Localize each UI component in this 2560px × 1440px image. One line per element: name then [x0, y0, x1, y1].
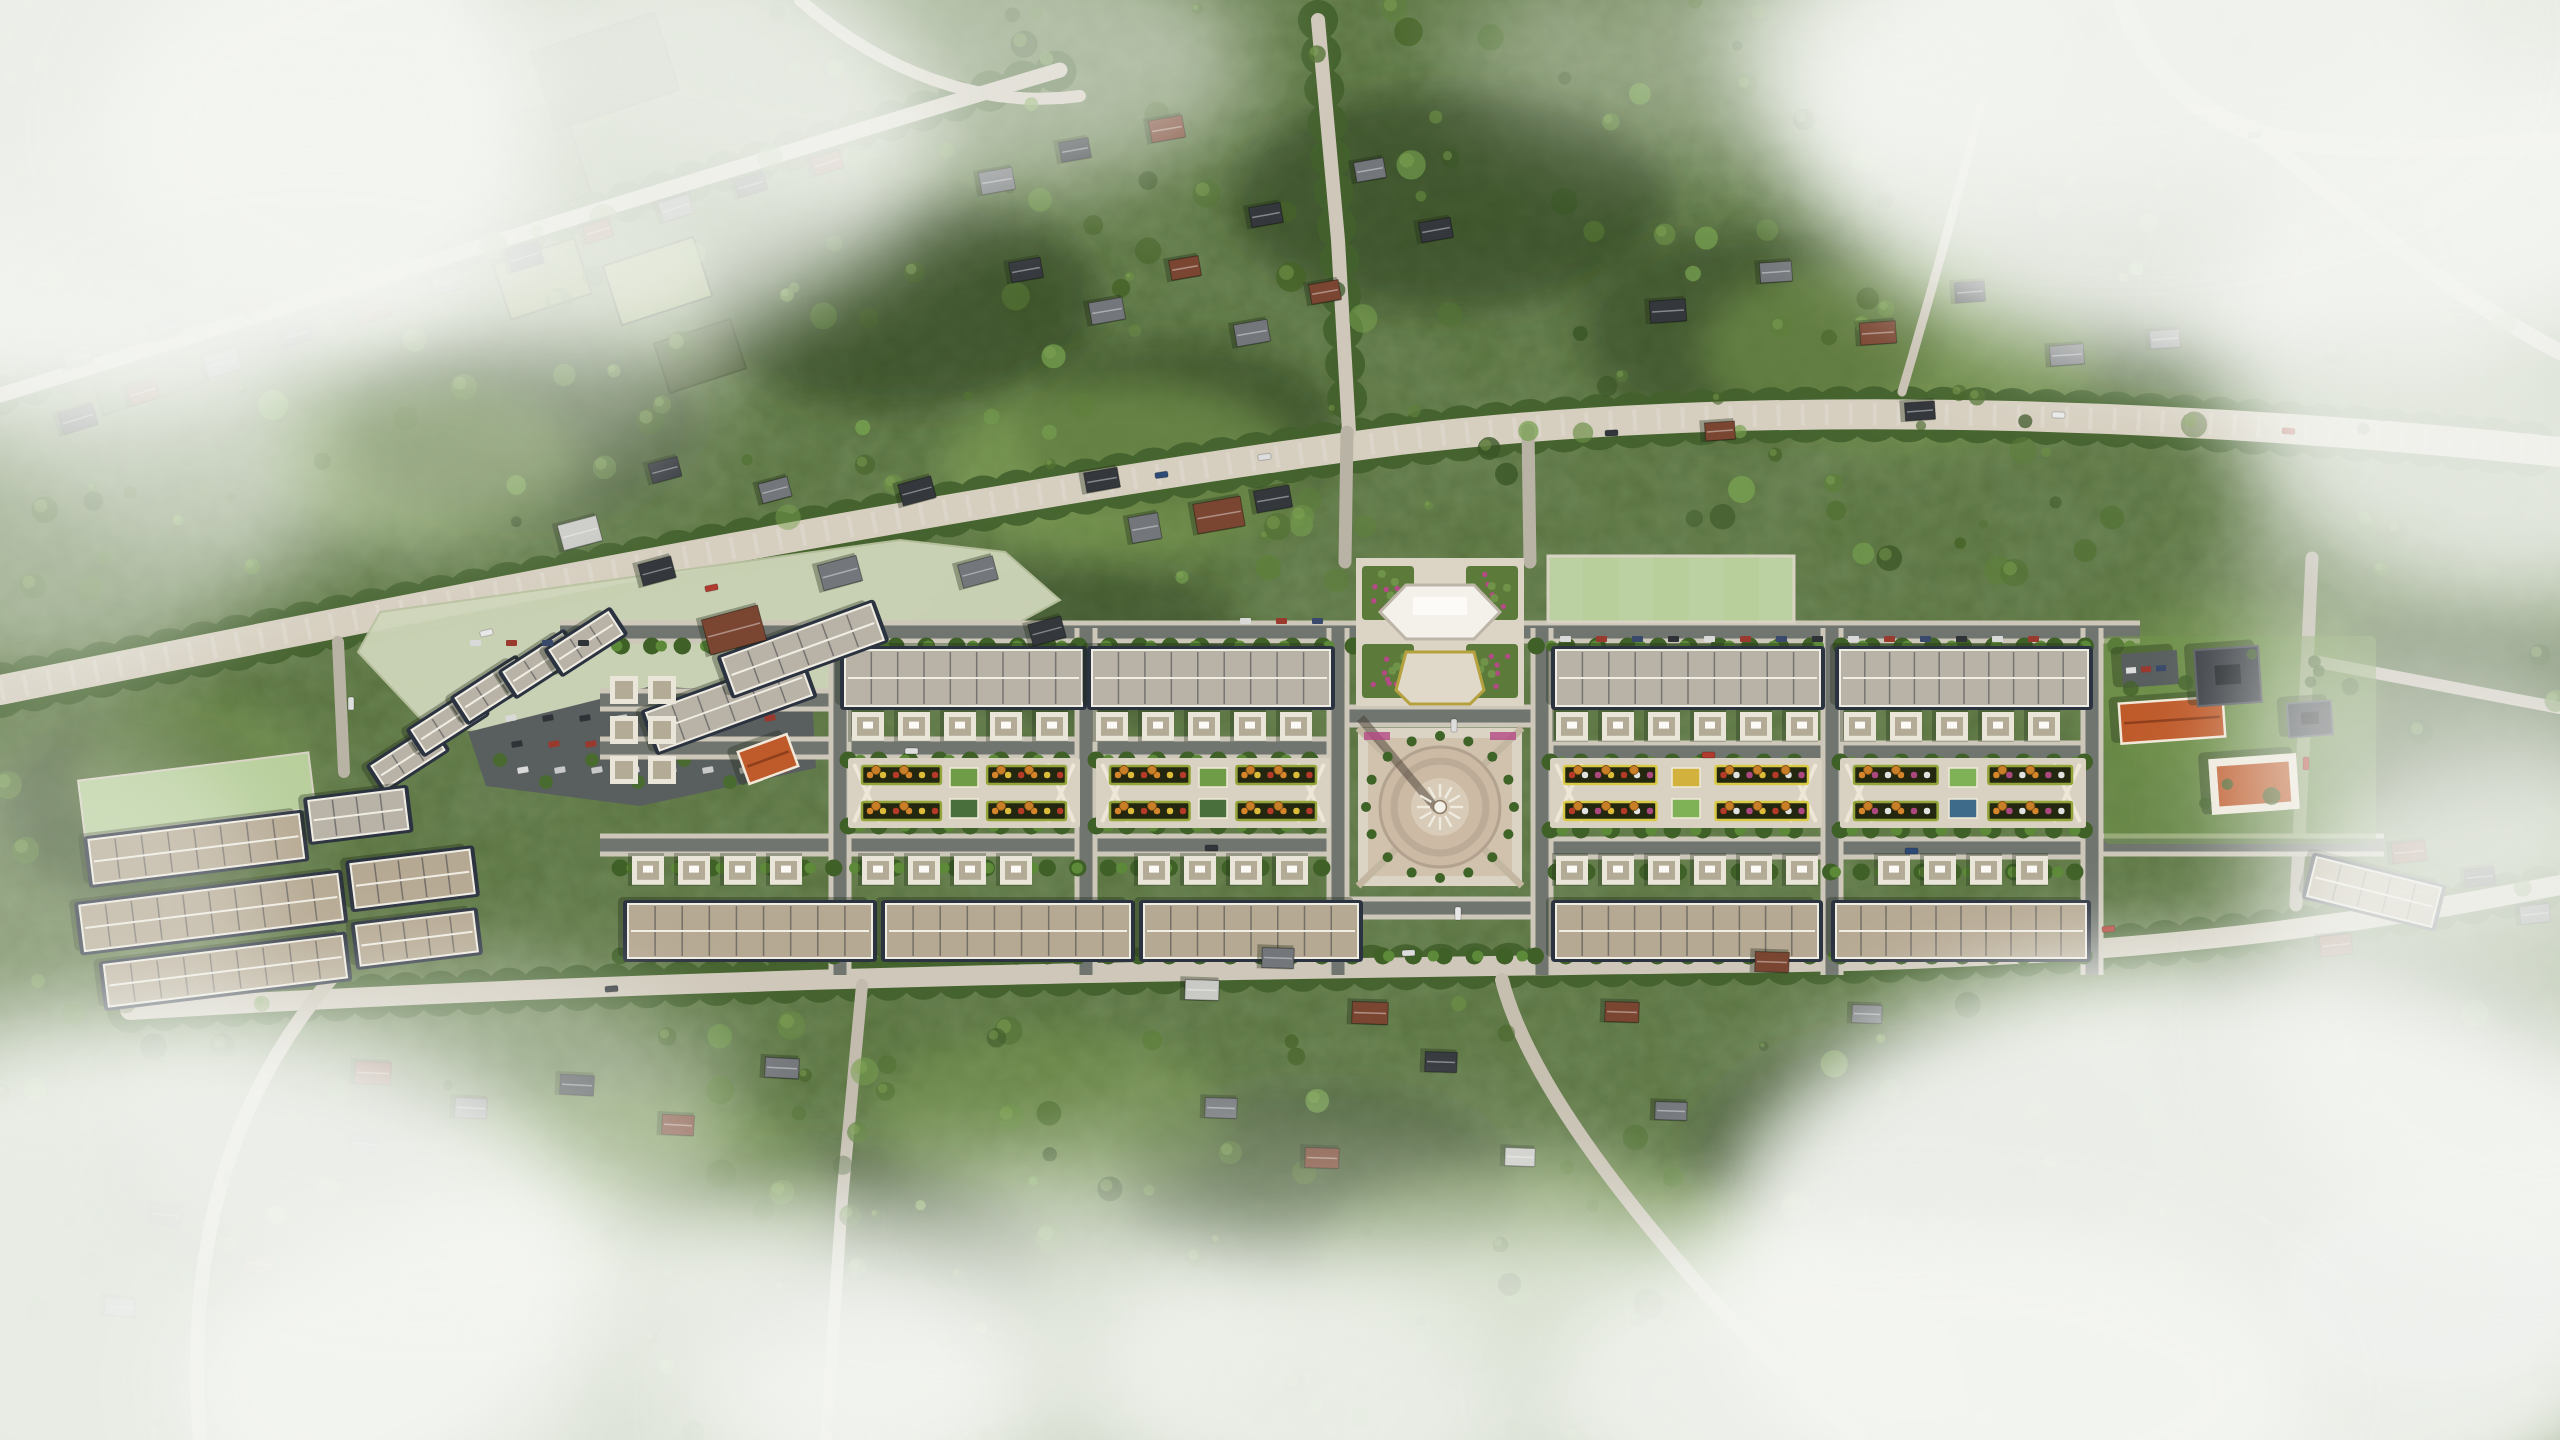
orange-tree	[1753, 802, 1762, 811]
parked-car	[2141, 666, 2151, 673]
flowers	[893, 808, 899, 814]
plaza-palm	[1487, 752, 1497, 762]
villa-house	[1552, 709, 1588, 742]
villa-house	[1276, 709, 1312, 742]
magenta-flowers	[1505, 654, 1510, 659]
house-ridge	[1607, 1011, 1637, 1012]
villa-house	[1644, 709, 1680, 742]
tree	[1287, 1047, 1305, 1065]
flowers	[1595, 808, 1601, 814]
flowers	[1772, 772, 1778, 778]
playground-court	[1672, 799, 1700, 818]
tree-highlight	[1266, 516, 1280, 530]
tree-highlight	[1770, 449, 1777, 456]
tree	[1354, 516, 1376, 538]
tree	[2018, 414, 2032, 428]
tree	[775, 505, 800, 530]
car	[2052, 412, 2065, 418]
garden-tree	[1378, 570, 1386, 578]
flowers	[1018, 808, 1024, 814]
house-ridge	[1187, 989, 1217, 990]
tree	[1138, 171, 1157, 190]
flowers	[1057, 772, 1063, 778]
garden-boulevard-segment	[1840, 758, 2086, 828]
villa-house	[1226, 853, 1262, 886]
townhouse-block	[618, 897, 877, 962]
civic-plaza	[1356, 558, 1524, 706]
villa-house	[720, 853, 756, 886]
villa-skylight	[1199, 722, 1209, 729]
flowers	[1798, 808, 1804, 814]
tree	[1112, 279, 1130, 297]
tree-highlight	[878, 1084, 888, 1094]
tree	[1042, 425, 1057, 440]
tree	[1349, 304, 1378, 333]
plaza-palm	[1463, 736, 1473, 746]
villa-skylight	[1011, 866, 1021, 873]
tree	[1954, 537, 1966, 549]
flowers	[2045, 808, 2051, 814]
villa-house	[1782, 853, 1818, 886]
flowers	[1872, 808, 1878, 814]
villa-house	[648, 676, 676, 704]
village-house	[759, 1054, 799, 1080]
village-house	[1123, 510, 1163, 546]
flowers	[1005, 772, 1011, 778]
magenta-flowers	[1501, 604, 1506, 609]
tree	[1756, 219, 1778, 241]
flowers	[2058, 772, 2064, 778]
mowing-stripe	[1759, 556, 1794, 622]
tree	[1916, 421, 1926, 431]
parked-car	[2156, 665, 2166, 672]
flowers	[1772, 808, 1778, 814]
mowing-stripe	[1548, 556, 1583, 622]
fog-patch	[950, 1105, 1670, 1325]
villa-skylight	[1567, 722, 1577, 729]
villa-skylight	[909, 722, 919, 729]
parked-car	[2126, 667, 2136, 674]
tree-highlight	[1617, 371, 1623, 377]
parked-car	[1668, 636, 1679, 642]
orange-tree	[1892, 802, 1901, 811]
tree	[1856, 287, 1878, 309]
field-turf	[1548, 556, 1794, 622]
orange-tree	[872, 766, 881, 775]
villa-skylight	[2027, 866, 2037, 873]
tree-highlight	[800, 1070, 807, 1077]
tree	[1623, 1125, 1648, 1150]
flowers	[1924, 772, 1930, 778]
flowers	[880, 808, 886, 814]
flowers	[1911, 808, 1917, 814]
tree	[2009, 437, 2036, 464]
orange-tree	[1753, 766, 1762, 775]
flowers	[1044, 808, 1050, 814]
plaza-palm	[1487, 852, 1497, 862]
parked-car	[1276, 618, 1287, 624]
villa-roof	[615, 721, 633, 739]
villa-house	[1736, 853, 1772, 886]
plaza-palm	[1383, 852, 1393, 862]
flowers	[1647, 772, 1653, 778]
mowing-stripe	[1689, 556, 1724, 622]
orange-tree	[1025, 766, 1034, 775]
flowers	[1293, 808, 1299, 814]
orange-tree	[1602, 766, 1611, 775]
orange-tree	[1864, 802, 1873, 811]
villa-skylight	[1245, 722, 1255, 729]
flowers	[1872, 772, 1878, 778]
orange-tree	[900, 802, 909, 811]
flowers	[1885, 808, 1891, 814]
villa-roof	[615, 761, 633, 779]
tree	[1416, 191, 1427, 202]
villa-skylight	[1981, 866, 1991, 873]
tree	[1685, 266, 1701, 282]
orange-tree	[1025, 802, 1034, 811]
flower-accent	[1490, 732, 1516, 740]
flowers	[893, 772, 899, 778]
flowers	[1293, 772, 1299, 778]
tree-highlight	[989, 1030, 999, 1040]
villa-house	[610, 716, 638, 744]
parking-strip	[2110, 643, 2179, 689]
villa-house	[858, 853, 894, 886]
road-west-connector	[338, 642, 344, 772]
villa-house	[1690, 709, 1726, 742]
plaza-palm	[1435, 873, 1445, 883]
flowers	[1733, 808, 1739, 814]
car	[1905, 848, 1918, 854]
magenta-flowers	[1387, 681, 1392, 686]
village-house	[1650, 1098, 1688, 1121]
flowers	[1254, 772, 1260, 778]
villa-skylight	[1613, 722, 1623, 729]
flowers	[1306, 772, 1312, 778]
villa-skylight	[1659, 722, 1669, 729]
villa-roof	[653, 761, 671, 779]
playground-court	[1672, 768, 1700, 787]
tree	[1518, 421, 1538, 441]
tree	[1573, 326, 1588, 341]
villa-house	[1184, 709, 1220, 742]
flowers	[2045, 772, 2051, 778]
tree	[859, 308, 879, 328]
tree	[1686, 510, 1704, 528]
tree-highlight	[1329, 405, 1335, 411]
parked-car	[1240, 618, 1251, 624]
tree-highlight	[2183, 414, 2196, 427]
flowers	[1582, 808, 1588, 814]
tree	[1979, 520, 1988, 529]
flowers	[1018, 772, 1024, 778]
orange-tree	[1574, 766, 1583, 775]
tree	[1551, 188, 1578, 215]
villa-skylight	[1149, 866, 1159, 873]
orange-tree	[1892, 766, 1901, 775]
tree	[1129, 324, 1142, 337]
villa-skylight	[1659, 866, 1669, 873]
village-house	[1347, 998, 1389, 1025]
villa-house	[1598, 709, 1634, 742]
school-tree	[2199, 797, 2211, 809]
villa-skylight	[955, 722, 965, 729]
parked-car	[506, 640, 517, 646]
school-tree	[2123, 681, 2139, 697]
villa-roof	[615, 681, 633, 699]
flowers	[1128, 772, 1134, 778]
playground-court	[1199, 799, 1227, 818]
school-tree	[2178, 675, 2193, 690]
garden-tree	[1488, 582, 1496, 590]
villa-house	[610, 756, 638, 784]
flowers	[1180, 772, 1186, 778]
tree	[1495, 463, 1518, 486]
tree-highlight	[1735, 426, 1742, 433]
townhouse-block	[1082, 643, 1335, 710]
tree-highlight	[1952, 386, 1960, 394]
tree	[1037, 1101, 1062, 1126]
tree	[1728, 476, 1755, 503]
villa-roof	[653, 681, 671, 699]
orange-tree	[1120, 766, 1129, 775]
plaza-palm	[1361, 802, 1371, 812]
flowers	[932, 808, 938, 814]
villa-skylight	[1797, 866, 1807, 873]
tree-highlight	[1196, 182, 1210, 196]
village-house	[1754, 258, 1793, 285]
flagpole-monument	[1434, 801, 1447, 814]
village-house	[1644, 296, 1687, 325]
villa-skylight	[781, 866, 791, 873]
magenta-flowers	[1372, 584, 1377, 589]
villa-skylight	[1287, 866, 1297, 873]
house-ridge	[1854, 1014, 1880, 1015]
parked-car	[470, 640, 481, 646]
flowers	[1733, 772, 1739, 778]
villa-house	[628, 853, 664, 886]
tree	[983, 408, 999, 424]
villa-house	[1966, 853, 2002, 886]
townhouse-block	[835, 643, 1087, 710]
villa-house	[1180, 853, 1216, 886]
villa-skylight	[919, 866, 929, 873]
villa-house	[1598, 853, 1634, 886]
tree	[964, 391, 973, 400]
villa-house	[1978, 709, 2014, 742]
village-house	[1257, 944, 1295, 969]
flowers	[1128, 808, 1134, 814]
car	[1455, 907, 1461, 920]
orange-tree	[872, 802, 881, 811]
parked-car	[1312, 618, 1323, 624]
orange-tree	[1274, 766, 1283, 775]
orange-tree	[1630, 802, 1639, 811]
villa-skylight	[965, 866, 975, 873]
villa-skylight	[1613, 866, 1623, 873]
flowers	[1044, 772, 1050, 778]
tree-highlight	[2003, 561, 2017, 575]
flowers	[932, 772, 938, 778]
tree	[1451, 996, 1466, 1011]
villa-skylight	[1935, 866, 1945, 873]
flowers	[1595, 772, 1601, 778]
orange-tree	[2026, 766, 2035, 775]
parked-car	[1740, 636, 1751, 642]
villa-skylight	[643, 866, 653, 873]
playground-court	[950, 768, 978, 787]
tree	[2074, 539, 2097, 562]
orange-tree	[1725, 766, 1734, 775]
village-house	[1420, 1048, 1458, 1073]
playground-court	[1199, 768, 1227, 787]
plaza-palm	[1367, 829, 1377, 839]
tree	[2100, 506, 2124, 530]
orange-tree	[1998, 802, 2007, 811]
tree-highlight	[1044, 347, 1056, 359]
garden-tree	[1480, 658, 1488, 666]
plaza-palm	[1367, 775, 1377, 785]
flowers	[1057, 808, 1063, 814]
villa-skylight	[1993, 722, 2003, 729]
tree-highlight	[1656, 226, 1667, 237]
tree-highlight	[1443, 151, 1452, 160]
village-house	[1899, 398, 1935, 422]
villa-skylight	[1705, 722, 1715, 729]
car	[1205, 845, 1218, 851]
villa-skylight	[2039, 722, 2049, 729]
parked-car	[1812, 636, 1823, 642]
villa-house	[1874, 853, 1910, 886]
tree	[1070, 393, 1094, 417]
car	[1605, 430, 1618, 436]
villa-skylight	[873, 866, 883, 873]
tree-highlight	[1126, 273, 1131, 278]
villa-house	[2012, 853, 2048, 886]
parking-island-tree	[493, 753, 507, 767]
villa-skylight	[863, 722, 873, 729]
flower-accent	[1364, 732, 1390, 740]
flowers	[1167, 772, 1173, 778]
villa-skylight	[1241, 866, 1251, 873]
tree-highlight	[1046, 460, 1052, 466]
flowers	[1746, 808, 1752, 814]
tree	[1583, 221, 1604, 242]
orange-tree	[1148, 766, 1157, 775]
flowers	[2019, 808, 2025, 814]
playground-court	[1949, 799, 1977, 818]
villa-house	[848, 709, 884, 742]
tree	[1826, 501, 1846, 521]
village-house	[1847, 1001, 1883, 1024]
tree-highlight	[1177, 572, 1184, 579]
flowers	[1885, 772, 1891, 778]
villa-house	[1840, 709, 1876, 742]
plaza-palm	[1503, 775, 1513, 785]
villa-skylight	[1855, 722, 1865, 729]
tree	[1002, 282, 1030, 310]
flowers	[2006, 772, 2012, 778]
road-axis-connector-w	[1345, 432, 1347, 562]
village-house	[1699, 418, 1735, 442]
townhouse-block	[1546, 643, 1825, 710]
flowers	[1647, 808, 1653, 814]
tree-highlight	[1308, 1091, 1320, 1103]
villa-house	[610, 676, 638, 704]
tree	[708, 1024, 732, 1048]
villa-skylight	[1195, 866, 1205, 873]
tree	[741, 454, 752, 465]
villa-skylight	[735, 866, 745, 873]
flowers	[2058, 808, 2064, 814]
parked-car	[1920, 636, 1931, 642]
tree	[1663, 1167, 1684, 1188]
flowers	[1746, 772, 1752, 778]
villa-house	[986, 709, 1022, 742]
villa-house	[940, 709, 976, 742]
orange-tree	[1246, 802, 1255, 811]
tree	[1135, 238, 1161, 264]
tree-highlight	[1713, 394, 1719, 400]
villa-skylight	[1153, 722, 1163, 729]
fog-patch	[120, 955, 740, 1295]
house-ridge	[1427, 1062, 1455, 1063]
tree-highlight	[1425, 501, 1430, 506]
villa-house	[2024, 709, 2060, 742]
flowers	[2019, 772, 2025, 778]
orange-tree	[997, 802, 1006, 811]
orange-tree	[997, 766, 1006, 775]
magenta-flowers	[1371, 682, 1376, 687]
tree	[1573, 422, 1594, 443]
tree-highlight	[1000, 1107, 1013, 1120]
tree-highlight	[1826, 475, 1835, 484]
parking-island-tree	[539, 775, 553, 789]
orange-tree	[900, 766, 909, 775]
civic-forecourt	[1396, 652, 1484, 704]
tree-highlight	[857, 457, 867, 467]
flowers	[1798, 772, 1804, 778]
garden-boulevard-segment	[1550, 758, 1822, 828]
magenta-flowers	[1489, 654, 1494, 659]
car	[1402, 950, 1415, 956]
flowers	[1141, 772, 1147, 778]
magenta-flowers	[1482, 572, 1487, 577]
townhouse-block	[876, 897, 1135, 962]
parked-car	[1632, 636, 1643, 642]
magenta-flowers	[1384, 587, 1389, 592]
parked-car	[1776, 636, 1787, 642]
tree-highlight	[1879, 548, 1892, 561]
flowers	[919, 772, 925, 778]
tree-highlight	[1310, 47, 1319, 56]
orange-tree	[1148, 802, 1157, 811]
villa-house	[1736, 709, 1772, 742]
tree-highlight	[1970, 390, 1979, 399]
car	[1451, 719, 1457, 732]
tree-highlight	[853, 1060, 867, 1074]
car	[348, 697, 354, 710]
tree-highlight	[1480, 439, 1491, 450]
villa-skylight	[1567, 866, 1577, 873]
parking-island-tree	[585, 753, 599, 767]
flowers	[880, 772, 886, 778]
plaza-palm	[1503, 829, 1513, 839]
villa-house	[904, 853, 940, 886]
orange-tree	[1246, 766, 1255, 775]
orange-tree	[1574, 802, 1583, 811]
